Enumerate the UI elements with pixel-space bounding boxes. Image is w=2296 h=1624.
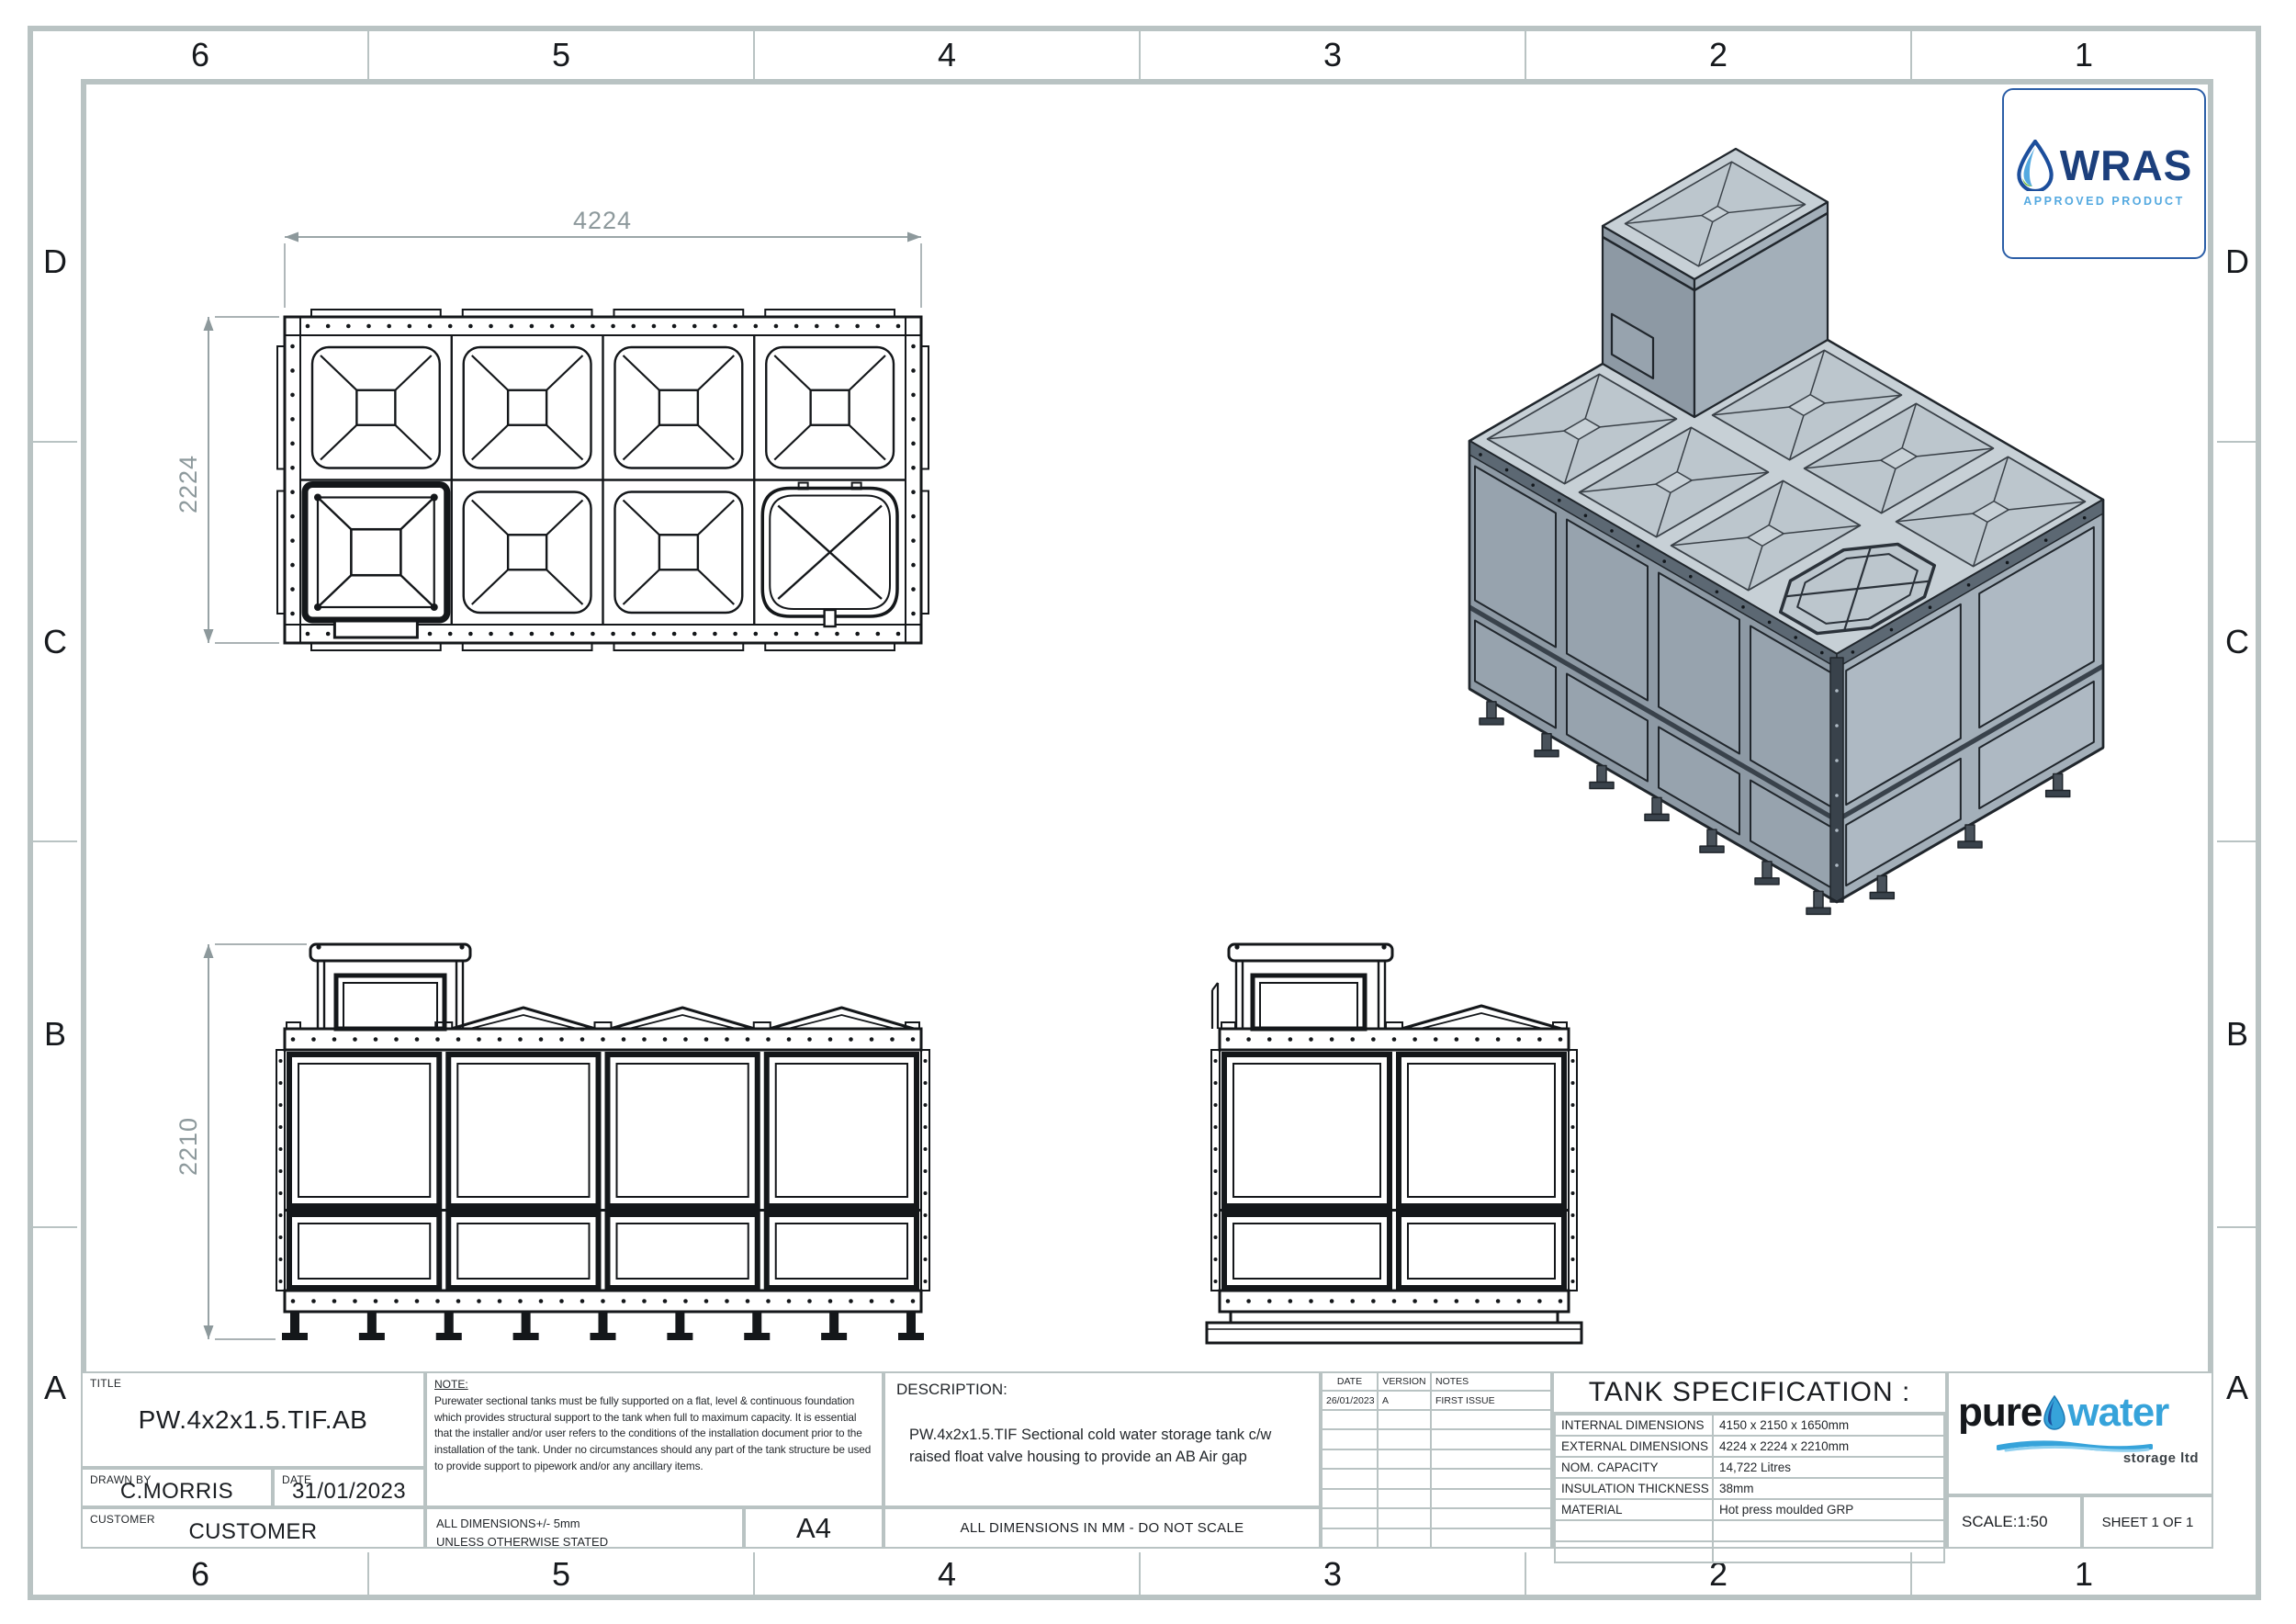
grid-col-label: 4	[753, 31, 1139, 79]
spec-label: NOM. CAPACITY	[1555, 1457, 1713, 1478]
customer-value: CUSTOMER	[83, 1509, 423, 1547]
tolerance-line2: UNLESS OTHERWISE STATED	[436, 1533, 608, 1551]
revision-empty-row	[1322, 1489, 1551, 1508]
revision-date: 26/01/2023	[1322, 1391, 1378, 1410]
spec-label: INTERNAL DIMENSIONS	[1555, 1415, 1713, 1436]
revision-empty-row	[1322, 1410, 1551, 1429]
spec-label: INSULATION THICKNESS	[1555, 1478, 1713, 1499]
grid-col-label: 1	[1910, 1552, 2256, 1596]
tolerance-line1: ALL DIMENSIONS+/- 5mm	[436, 1515, 608, 1533]
grid-row-C: C	[43, 623, 67, 661]
spec-empty-row	[1555, 1520, 1944, 1541]
drawn-by-cell: DRAWN BY C.MORRIS	[81, 1468, 273, 1507]
revision-header-notes: NOTES	[1431, 1372, 1551, 1391]
grid-row-label: A	[2217, 1226, 2257, 1548]
wras-logo-row: WRAS	[2016, 140, 2193, 191]
grid-col-label: 6	[33, 1552, 367, 1596]
purewater-logo-cell: pure water storage ltd	[1947, 1371, 2213, 1495]
spec-label: MATERIAL	[1555, 1499, 1713, 1520]
grid-col-4b: 4	[938, 1555, 956, 1594]
revision-header-date: DATE	[1322, 1372, 1378, 1391]
grid-col-6b: 6	[191, 1555, 209, 1594]
logo-word-water: water	[2067, 1390, 2168, 1436]
grid-col-label: 1	[1910, 31, 2256, 79]
dimensions-note-cell: ALL DIMENSIONS IN MM - DO NOT SCALE	[884, 1507, 1321, 1549]
description-cell: DESCRIPTION: PW.4x2x1.5.TIF Sectional co…	[884, 1371, 1321, 1507]
grid-col-6: 6	[191, 36, 209, 74]
grid-col-5b: 5	[552, 1555, 570, 1594]
note-text: Purewater sectional tanks must be fully …	[434, 1393, 876, 1474]
grid-row-D: D	[43, 242, 67, 281]
revision-empty-row	[1322, 1508, 1551, 1528]
grid-col-4: 4	[938, 36, 956, 74]
tolerance-text: ALL DIMENSIONS+/- 5mm UNLESS OTHERWISE S…	[436, 1515, 608, 1551]
grid-row-Dr: D	[2225, 242, 2249, 281]
spec-empty-row	[1555, 1541, 1944, 1562]
grid-row-Ar: A	[2226, 1369, 2248, 1407]
spec-label: EXTERNAL DIMENSIONS	[1555, 1436, 1713, 1457]
revision-version: A	[1378, 1391, 1431, 1410]
wras-approved-logo: WRAS APPROVED PRODUCT	[2002, 88, 2206, 259]
grid-col-label: 5	[367, 1552, 753, 1596]
grid-col-1: 1	[2075, 36, 2093, 74]
revision-empty-row	[1322, 1528, 1551, 1548]
specification-table: INTERNAL DIMENSIONS 4150 x 2150 x 1650mm…	[1554, 1414, 1945, 1563]
water-drop-icon	[2016, 140, 2054, 191]
paper-size-cell: A4	[744, 1507, 884, 1549]
logo-tagline: storage ltd	[2123, 1450, 2199, 1466]
grid-row-label: C	[2217, 441, 2257, 840]
grid-row-label: D	[33, 83, 77, 441]
revision-table: DATE VERSION NOTES 26/01/2023 A FIRST IS…	[1321, 1371, 1552, 1549]
grid-col-1b: 1	[2075, 1555, 2093, 1594]
grid-row-A: A	[44, 1369, 66, 1407]
grid-col-label: 4	[753, 1552, 1139, 1596]
grid-col-label: 3	[1139, 1552, 1525, 1596]
grid-row-B: B	[44, 1015, 66, 1054]
grid-col-3: 3	[1323, 36, 1342, 74]
grid-col-label: 6	[33, 31, 367, 79]
drawing-title: PW.4x2x1.5.TIF.AB	[83, 1373, 423, 1466]
specification-cell: TANK SPECIFICATION : INTERNAL DIMENSIONS…	[1552, 1371, 1947, 1549]
scale-value: SCALE:1:50	[1949, 1497, 2080, 1547]
grid-col-3b: 3	[1323, 1555, 1342, 1594]
grid-row-Cr: C	[2225, 623, 2249, 661]
spec-value: 14,722 Litres	[1713, 1457, 1944, 1478]
grid-row-Br: B	[2226, 1015, 2248, 1054]
revision-table-cell: DATE VERSION NOTES 26/01/2023 A FIRST IS…	[1321, 1371, 1552, 1549]
specification-title: TANK SPECIFICATION :	[1554, 1373, 1945, 1414]
grid-row-label: B	[33, 840, 77, 1226]
grid-col-label: 2	[1525, 31, 1910, 79]
spec-value: 4224 x 2224 x 2210mm	[1713, 1436, 1944, 1457]
date-value: 31/01/2023	[275, 1470, 423, 1506]
dimensions-note: ALL DIMENSIONS IN MM - DO NOT SCALE	[885, 1509, 1319, 1547]
scale-cell: SCALE:1:50	[1947, 1495, 2082, 1549]
revision-header-version: VERSION	[1378, 1372, 1431, 1391]
wras-wordmark: WRAS	[2060, 141, 2193, 190]
revision-notes: FIRST ISSUE	[1431, 1391, 1551, 1410]
revision-empty-row	[1322, 1429, 1551, 1449]
grid-row-label: B	[2217, 840, 2257, 1226]
revision-empty-row	[1322, 1449, 1551, 1469]
logo-word-pure: pure	[1958, 1390, 2042, 1436]
grid-col-label: 5	[367, 31, 753, 79]
grid-row-label: D	[2217, 83, 2257, 441]
title-cell: TITLE PW.4x2x1.5.TIF.AB	[81, 1371, 425, 1468]
tolerance-cell: ALL DIMENSIONS+/- 5mm UNLESS OTHERWISE S…	[425, 1507, 744, 1549]
description-label: DESCRIPTION:	[896, 1381, 1007, 1399]
spec-value: 38mm	[1713, 1478, 1944, 1499]
inner-border-frame	[81, 79, 2213, 1549]
grid-row-label: A	[33, 1226, 77, 1548]
spec-value: Hot press moulded GRP	[1713, 1499, 1944, 1520]
grid-col-5: 5	[552, 36, 570, 74]
note-cell: NOTE: Purewater sectional tanks must be …	[425, 1371, 884, 1507]
spec-value: 4150 x 2150 x 1650mm	[1713, 1415, 1944, 1436]
wras-subtitle: APPROVED PRODUCT	[2023, 195, 2184, 208]
grid-col-label: 3	[1139, 31, 1525, 79]
grid-row-label: C	[33, 441, 77, 840]
drawing-sheet: 6 5 4 3 2 1 6 5 4 3 2 1 D C B A D C B A …	[0, 0, 2296, 1624]
sheet-number: SHEET 1 OF 1	[2084, 1497, 2212, 1547]
revision-empty-row	[1322, 1469, 1551, 1488]
grid-col-2: 2	[1709, 36, 1728, 74]
description-text: PW.4x2x1.5.TIF Sectional cold water stor…	[909, 1425, 1277, 1469]
sheet-number-cell: SHEET 1 OF 1	[2082, 1495, 2213, 1549]
drawn-by-value: C.MORRIS	[83, 1470, 271, 1506]
customer-cell: CUSTOMER CUSTOMER	[81, 1507, 425, 1549]
date-cell: DATE 31/01/2023	[273, 1468, 425, 1507]
note-label: NOTE:	[434, 1378, 468, 1391]
purewater-logo: pure water	[1958, 1390, 2168, 1436]
logo-drop-icon	[2043, 1395, 2066, 1432]
paper-size: A4	[746, 1509, 882, 1547]
